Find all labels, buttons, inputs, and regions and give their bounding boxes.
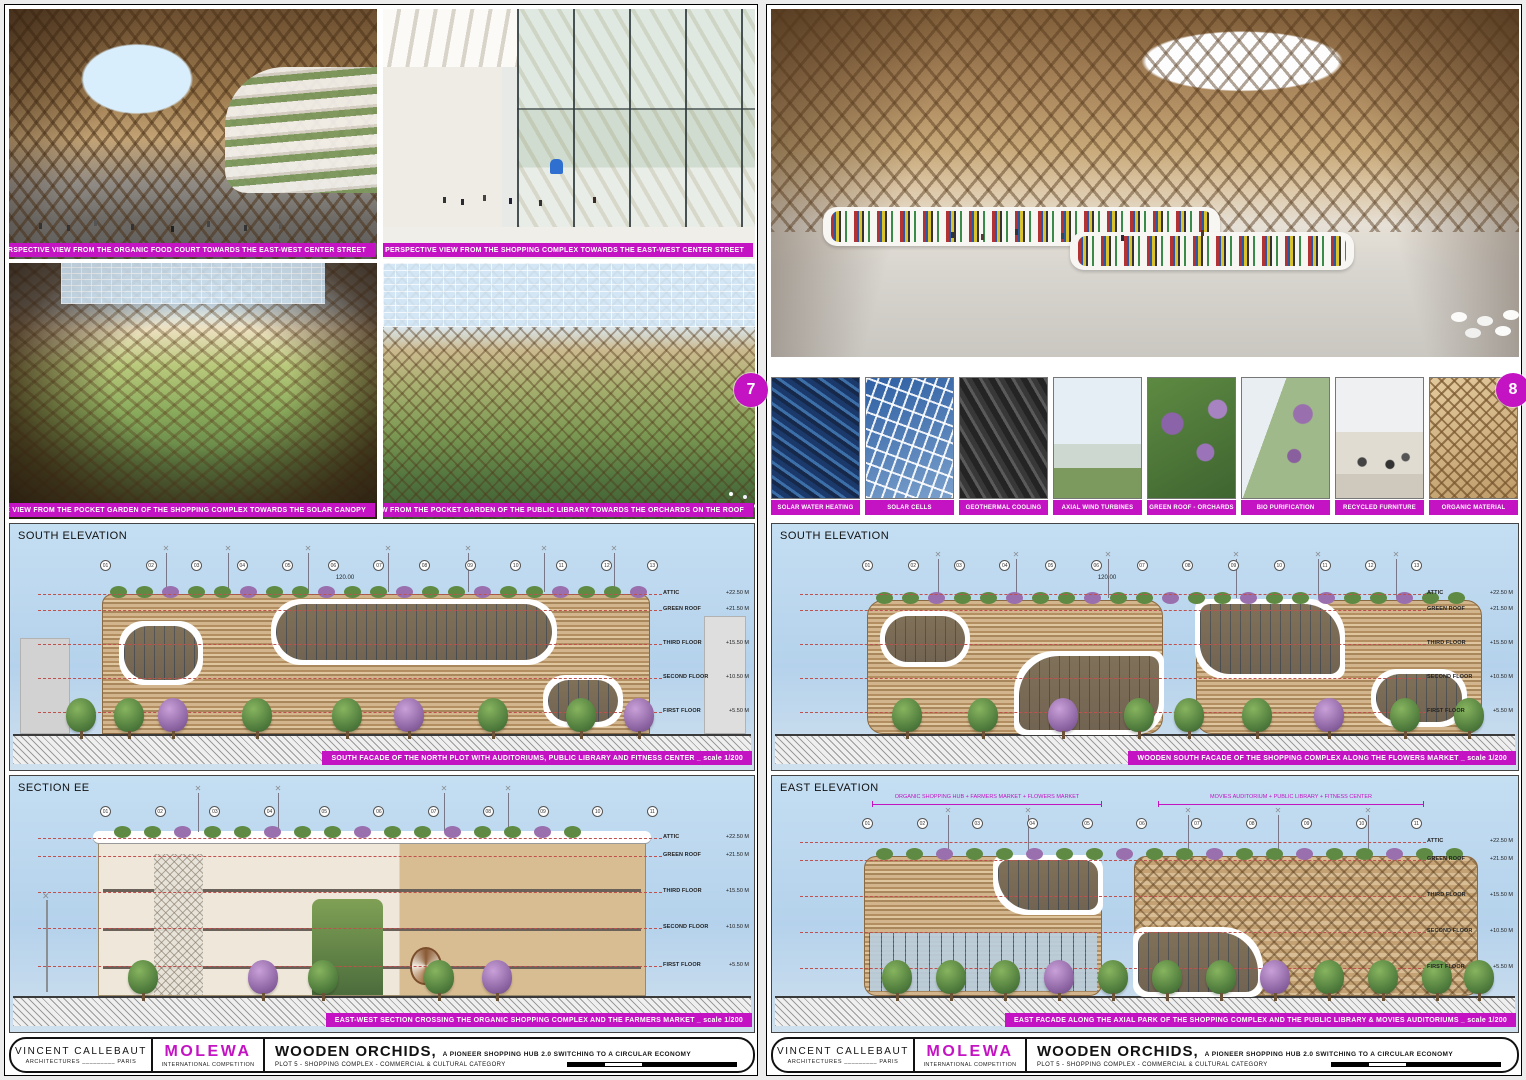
page-number-badge: 7 — [734, 373, 768, 407]
green-roof-orchards-image — [1147, 377, 1236, 499]
tree — [968, 698, 998, 732]
roof-planting — [526, 586, 543, 598]
grid-bubble: 03 — [191, 560, 202, 571]
roof-planting — [188, 586, 205, 598]
grid-bubble: 02 — [908, 560, 919, 571]
grid-bubble: 09 — [1228, 560, 1239, 571]
roof-planting — [1206, 848, 1223, 860]
tree — [1242, 698, 1272, 732]
grid-bubble: 12 — [601, 560, 612, 571]
roof-planting — [162, 586, 179, 598]
level-line — [38, 678, 662, 679]
level-label: SECOND FLOOR+10.50 M — [1427, 928, 1513, 934]
scale-bar — [567, 1062, 737, 1067]
south-elevation-panel: SOUTH ELEVATION 010203040506070809101112… — [771, 523, 1519, 771]
roof-planting — [578, 586, 595, 598]
level-label: FIRST FLOOR+5.50 M — [663, 708, 749, 714]
architect-cell: VINCENT CALLEBAUT ARCHITECTURES ________… — [11, 1039, 153, 1071]
panel-label: SOUTH ELEVATION — [780, 530, 889, 542]
tree — [478, 698, 508, 732]
roof-planting — [1326, 848, 1343, 860]
level-label: SECOND FLOOR+10.50 M — [1427, 674, 1513, 680]
competition-subtitle: INTERNATIONAL COMPETITION — [923, 1062, 1016, 1068]
tree — [1174, 698, 1204, 732]
roof-planting — [144, 826, 161, 838]
level-label: FIRST FLOOR+5.50 M — [663, 962, 749, 968]
tree — [424, 960, 454, 994]
thumbnail-label: BIO PURIFICATION — [1241, 500, 1330, 515]
grid-bubble-row: 0102030405060708091011 — [100, 806, 658, 817]
facade-opening — [271, 599, 557, 665]
competition-cell: MOLEWA INTERNATIONAL COMPETITION — [153, 1039, 265, 1071]
tree — [892, 698, 922, 732]
thumbnail: AXIAL WIND TURBINES — [1053, 377, 1142, 515]
solar-canopy-grid — [61, 263, 326, 304]
wind-turbine-icon — [1010, 552, 1022, 598]
skylight-grid — [383, 263, 755, 327]
roof-planting — [1026, 848, 1043, 860]
level-label: ATTIC+22.50 M — [1427, 838, 1513, 844]
wind-turbine-icon — [1312, 552, 1324, 598]
grid-bubble: 04 — [264, 806, 275, 817]
architect-subtitle: ARCHITECTURES _________ PARIS — [788, 1059, 899, 1065]
roof-planting — [630, 586, 647, 598]
dimension-header: ORGANIC SHOPPING HUB + FARMERS MARKET + … — [872, 794, 1102, 805]
roof-planting — [370, 586, 387, 598]
project-subtitle: A PIONEER SHOPPING HUB 2.0 SWITCHING TO … — [1205, 1051, 1453, 1058]
purple-tree — [624, 698, 654, 732]
level-label: GREEN ROOF+21.50 M — [1427, 856, 1513, 862]
level-label: GREEN ROOF+21.50 M — [663, 852, 749, 858]
grid-bubble: 10 — [1356, 818, 1367, 829]
grid-bubble: 06 — [373, 806, 384, 817]
east-elevation-panel: EAST ELEVATION ORGANIC SHOPPING HUB + FA… — [771, 775, 1519, 1033]
level-label: THIRD FLOOR+15.50 M — [1427, 640, 1513, 646]
roof-planting — [564, 826, 581, 838]
grid-bubble: 05 — [319, 806, 330, 817]
thumbnail-label: ORGANIC MATERIAL — [1429, 500, 1518, 515]
grid-bubble: 02 — [917, 818, 928, 829]
facade-opening — [880, 611, 970, 667]
tree — [66, 698, 96, 732]
people-specks — [951, 232, 954, 238]
grid-bubble: 02 — [155, 806, 166, 817]
dimension-label: 120.00 — [1067, 575, 1147, 581]
panel-caption: WOODEN SOUTH FACADE OF THE SHOPPING COMP… — [1128, 751, 1516, 765]
grid-bubble: 04 — [999, 560, 1010, 571]
tree — [1152, 960, 1182, 994]
level-label: THIRD FLOOR+15.50 M — [663, 888, 749, 894]
presentation-board: PERSPECTIVE VIEW FROM THE ORGANIC FOOD C… — [0, 0, 1526, 1080]
lounge-chairs — [1451, 312, 1467, 322]
thumbnail-label: GEOTHERMAL COOLING — [959, 500, 1048, 515]
roof-planting — [936, 848, 953, 860]
roof-planting — [604, 586, 621, 598]
roof-planting — [500, 586, 517, 598]
grid-bubble: 13 — [647, 560, 658, 571]
roof-planting — [1056, 848, 1073, 860]
tree — [1390, 698, 1420, 732]
grid-bubble: 01 — [862, 818, 873, 829]
facade-opening — [1133, 927, 1263, 997]
level-line — [38, 928, 662, 929]
competition-cell: MOLEWA INTERNATIONAL COMPETITION — [915, 1039, 1027, 1071]
grid-bubble: 05 — [1082, 818, 1093, 829]
grid-bubble: 09 — [538, 806, 549, 817]
architect-subtitle: ARCHITECTURES _________ PARIS — [26, 1059, 137, 1065]
grid-bubble: 07 — [428, 806, 439, 817]
level-label: GREEN ROOF+21.50 M — [663, 606, 749, 612]
roof-planting — [552, 586, 569, 598]
bookshelf — [1070, 232, 1354, 270]
grid-bubble: 04 — [237, 560, 248, 571]
competition-name: MOLEWA — [165, 1043, 252, 1061]
tree — [1098, 960, 1128, 994]
level-label: ATTIC+22.50 M — [1427, 590, 1513, 596]
grid-bubble: 11 — [556, 560, 567, 571]
purple-tree — [394, 698, 424, 732]
level-label: FIRST FLOOR+5.50 M — [1427, 708, 1513, 714]
level-label: FIRST FLOOR+5.50 M — [1427, 964, 1513, 970]
roof-planting — [136, 586, 153, 598]
page-number-badge: 8 — [1496, 373, 1526, 407]
level-line — [800, 896, 1426, 897]
facade-opening — [1195, 599, 1345, 679]
roof-planting — [996, 848, 1013, 860]
roof-planting — [474, 586, 491, 598]
level-label: THIRD FLOOR+15.50 M — [1427, 892, 1513, 898]
wooden-diagrid-vault — [771, 9, 1519, 232]
roof-planting — [1086, 848, 1103, 860]
grid-bubble: 11 — [1320, 560, 1331, 571]
project-category: PLOT 5 - SHOPPING COMPLEX - COMMERCIAL &… — [275, 1062, 506, 1068]
grid-bubble: 03 — [972, 818, 983, 829]
dimension-label: 120.00 — [305, 575, 385, 581]
panel-caption: EAST-WEST SECTION CROSSING THE ORGANIC S… — [326, 1013, 752, 1027]
roof-planting — [344, 586, 361, 598]
tree — [128, 960, 158, 994]
terrace-shape — [225, 67, 377, 193]
title-block: VINCENT CALLEBAUT ARCHITECTURES ________… — [771, 1037, 1519, 1073]
roof-planting — [234, 826, 251, 838]
competition-name: MOLEWA — [927, 1043, 1014, 1061]
level-label: GREEN ROOF+21.50 M — [1427, 606, 1513, 612]
tree — [566, 698, 596, 732]
purple-tree — [158, 698, 188, 732]
grid-bubble: 07 — [1137, 560, 1148, 571]
purple-tree — [1048, 698, 1078, 732]
level-label: SECOND FLOOR+10.50 M — [663, 674, 749, 680]
roof-planting — [396, 586, 413, 598]
roof-planting — [1176, 848, 1193, 860]
blue-chair — [550, 159, 563, 174]
roof-planting — [474, 826, 491, 838]
level-line — [800, 932, 1426, 933]
people-specks — [39, 223, 42, 229]
grid-bubble: 04 — [1027, 818, 1038, 829]
grid-bubble: 09 — [1301, 818, 1312, 829]
grid-bubble: 01 — [100, 560, 111, 571]
grid-bubble: 08 — [1246, 818, 1257, 829]
level-line — [38, 644, 662, 645]
image-caption: PERSPECTIVE VIEW FROM THE POCKET GARDEN … — [9, 503, 375, 517]
wind-turbine-icon — [932, 552, 944, 598]
grid-bubble-row: 01020304050607080910111213 — [862, 560, 1422, 571]
perspective-pocket-garden-shopping-image: PERSPECTIVE VIEW FROM THE POCKET GARDEN … — [9, 263, 377, 519]
roof-planting — [204, 826, 221, 838]
project-title: WOODEN ORCHIDS, — [1037, 1043, 1199, 1060]
architect-name: VINCENT CALLEBAUT — [777, 1046, 909, 1057]
roof-planting — [110, 586, 127, 598]
roof-planting — [292, 586, 309, 598]
tree — [1206, 960, 1236, 994]
flower-dots — [729, 492, 733, 496]
roof-planting — [1116, 848, 1133, 860]
grid-bubble: 01 — [862, 560, 873, 571]
roof-planting — [1296, 848, 1313, 860]
tree — [1454, 698, 1484, 732]
roof-planting — [214, 586, 231, 598]
tree — [308, 960, 338, 994]
wind-turbine-icon — [1230, 552, 1242, 598]
south-elevation-panel: SOUTH ELEVATION 010203040506070809101112… — [9, 523, 755, 771]
roof-planting — [504, 826, 521, 838]
level-line — [800, 594, 1426, 595]
dimension-header: MOVIES AUDITORIUM + PUBLIC LIBRARY + FIT… — [1158, 794, 1424, 805]
grid-bubble: 13 — [1411, 560, 1422, 571]
roof-planting — [1356, 848, 1373, 860]
roof-planting — [448, 586, 465, 598]
grid-bubble: 06 — [328, 560, 339, 571]
level-label: ATTIC+22.50 M — [663, 834, 749, 840]
grid-bubble: 03 — [954, 560, 965, 571]
thumbnail-label: RECYCLED FURNITURE — [1335, 500, 1424, 515]
level-label: SECOND FLOOR+10.50 M — [663, 924, 749, 930]
level-line — [38, 892, 662, 893]
thumbnail: GEOTHERMAL COOLING — [959, 377, 1048, 515]
perspective-public-library-image: PERSPECTIVE VIEW OF THE PUBLIC LIBRARY I… — [771, 9, 1519, 357]
purple-tree — [248, 960, 278, 994]
project-title: WOODEN ORCHIDS, — [275, 1043, 437, 1060]
tree — [990, 960, 1020, 994]
project-subtitle: A PIONEER SHOPPING HUB 2.0 SWITCHING TO … — [443, 1051, 691, 1058]
purple-tree — [1260, 960, 1290, 994]
purple-tree — [1314, 698, 1344, 732]
facade-opening — [119, 621, 203, 685]
axial-wind-turbines-image — [1053, 377, 1142, 499]
grid-bubble: 08 — [483, 806, 494, 817]
level-label: THIRD FLOOR+15.50 M — [663, 640, 749, 646]
tree — [114, 698, 144, 732]
sheet-8: PERSPECTIVE VIEW OF THE PUBLIC LIBRARY I… — [766, 4, 1522, 1076]
lattice-wall — [154, 854, 203, 995]
purple-tree — [482, 960, 512, 994]
grid-bubble: 10 — [1274, 560, 1285, 571]
people-specks — [443, 197, 446, 203]
grid-bubble: 05 — [1045, 560, 1056, 571]
bio-purification-image — [1241, 377, 1330, 499]
roof-planting — [444, 826, 461, 838]
competition-subtitle: INTERNATIONAL COMPETITION — [161, 1062, 254, 1068]
architect-cell: VINCENT CALLEBAUT ARCHITECTURES ________… — [773, 1039, 915, 1071]
glass-wall — [517, 9, 755, 229]
grid-bubble-row: 0102030405060708091011 — [862, 818, 1422, 829]
grid-bubble-row: 01020304050607080910111213 — [100, 560, 658, 571]
level-line — [38, 856, 662, 857]
level-line — [38, 594, 662, 595]
level-line — [38, 610, 662, 611]
level-line — [38, 838, 662, 839]
level-line — [800, 860, 1426, 861]
roof-planting — [1386, 848, 1403, 860]
roof-planting — [966, 848, 983, 860]
wind-tree-pole — [46, 900, 48, 992]
panel-label: SOUTH ELEVATION — [18, 530, 127, 542]
grid-bubble: 09 — [465, 560, 476, 571]
level-line — [800, 842, 1426, 843]
geothermal-cooling-image — [959, 377, 1048, 499]
image-caption: PERSPECTIVE VIEW FROM THE POCKET GARDEN … — [383, 503, 753, 517]
grid-bubble: 07 — [373, 560, 384, 571]
roof-planting — [1266, 848, 1283, 860]
panel-label: SECTION EE — [18, 782, 90, 794]
purple-tree — [1044, 960, 1074, 994]
roof-planting — [264, 826, 281, 838]
sustainability-thumbnails: SOLAR WATER HEATING SOLAR CELLS GEOTHERM… — [771, 377, 1519, 515]
grid-bubble: 07 — [1191, 818, 1202, 829]
project-cell: WOODEN ORCHIDS, A PIONEER SHOPPING HUB 2… — [265, 1039, 753, 1071]
facade-opening — [993, 855, 1103, 915]
panel-caption: SOUTH FACADE OF THE NORTH PLOT WITH AUDI… — [322, 751, 752, 765]
perspective-food-court-image: PERSPECTIVE VIEW FROM THE ORGANIC FOOD C… — [9, 9, 377, 259]
solar-cells-image — [865, 377, 954, 499]
thumbnail-label: SOLAR WATER HEATING — [771, 500, 860, 515]
grid-bubble: 12 — [1365, 560, 1376, 571]
thumbnail-label: AXIAL WIND TURBINES — [1053, 500, 1142, 515]
tree — [882, 960, 912, 994]
grid-bubble: 08 — [419, 560, 430, 571]
context-building — [20, 638, 70, 734]
thumbnail: GREEN ROOF - ORCHARDS — [1147, 377, 1236, 515]
grid-bubble: 10 — [510, 560, 521, 571]
image-caption: PERSPECTIVE VIEW FROM THE SHOPPING COMPL… — [383, 243, 753, 257]
roof-planting — [266, 586, 283, 598]
roof-planting — [294, 826, 311, 838]
roof-planting — [906, 848, 923, 860]
grid-bubble: 10 — [592, 806, 603, 817]
perspective-pocket-garden-library-image: PERSPECTIVE VIEW FROM THE POCKET GARDEN … — [383, 263, 755, 519]
tree — [1368, 960, 1398, 994]
roof-planting — [1146, 848, 1163, 860]
thumbnail-label: GREEN ROOF - ORCHARDS — [1147, 500, 1236, 515]
grid-bubble: 06 — [1136, 818, 1147, 829]
project-cell: WOODEN ORCHIDS, A PIONEER SHOPPING HUB 2… — [1027, 1039, 1517, 1071]
grid-bubble: 11 — [1411, 818, 1422, 829]
scale-bar — [1331, 1062, 1501, 1067]
recycled-furniture-image — [1335, 377, 1424, 499]
thumbnail-label: SOLAR CELLS — [865, 500, 954, 515]
roof-planting — [384, 826, 401, 838]
project-category: PLOT 5 - SHOPPING COMPLEX - COMMERCIAL &… — [1037, 1062, 1268, 1068]
tree — [936, 960, 966, 994]
thumbnail: BIO PURIFICATION — [1241, 377, 1330, 515]
roof-planting — [174, 826, 191, 838]
section-ee-panel: SECTION EE 0102030405060708091011 EAST-W… — [9, 775, 755, 1033]
tree — [1124, 698, 1154, 732]
thumbnail: RECYCLED FURNITURE — [1335, 377, 1424, 515]
sheet-7: PERSPECTIVE VIEW FROM THE ORGANIC FOOD C… — [4, 4, 758, 1076]
grid-bubble: 01 — [100, 806, 111, 817]
roof-planting — [422, 586, 439, 598]
tree — [1314, 960, 1344, 994]
roof-planting — [1236, 848, 1253, 860]
thumbnail: SOLAR CELLS — [865, 377, 954, 515]
panel-label: EAST ELEVATION — [780, 782, 879, 794]
roof-planting — [114, 826, 131, 838]
perspective-shopping-complex-image: PERSPECTIVE VIEW FROM THE SHOPPING COMPL… — [383, 9, 755, 259]
grid-bubble: 08 — [1182, 560, 1193, 571]
image-caption: PERSPECTIVE VIEW FROM THE ORGANIC FOOD C… — [9, 243, 375, 257]
grid-bubble: 06 — [1091, 560, 1102, 571]
roof-planting — [324, 826, 341, 838]
tree — [332, 698, 362, 732]
tree — [242, 698, 272, 732]
level-line — [800, 610, 1426, 611]
level-label: ATTIC+22.50 M — [663, 590, 749, 596]
thumbnail: SOLAR WATER HEATING — [771, 377, 860, 515]
grid-bubble: 03 — [209, 806, 220, 817]
wind-turbine-icon — [1390, 552, 1402, 598]
grid-bubble: 05 — [282, 560, 293, 571]
roof-planting — [414, 826, 431, 838]
roof-planting — [876, 848, 893, 860]
roof-planting — [354, 826, 371, 838]
grid-bubble: 02 — [146, 560, 157, 571]
panel-caption: EAST FACADE ALONG THE AXIAL PARK OF THE … — [1005, 1013, 1516, 1027]
section-building — [98, 834, 646, 996]
architect-name: VINCENT CALLEBAUT — [15, 1046, 147, 1057]
solar-water-heating-image — [771, 377, 860, 499]
roof-planting — [534, 826, 551, 838]
grid-bubble: 11 — [647, 806, 658, 817]
roof-planting — [318, 586, 335, 598]
roof-planting — [240, 586, 257, 598]
level-line — [800, 644, 1426, 645]
level-line — [800, 678, 1426, 679]
title-block: VINCENT CALLEBAUT ARCHITECTURES ________… — [9, 1037, 755, 1073]
